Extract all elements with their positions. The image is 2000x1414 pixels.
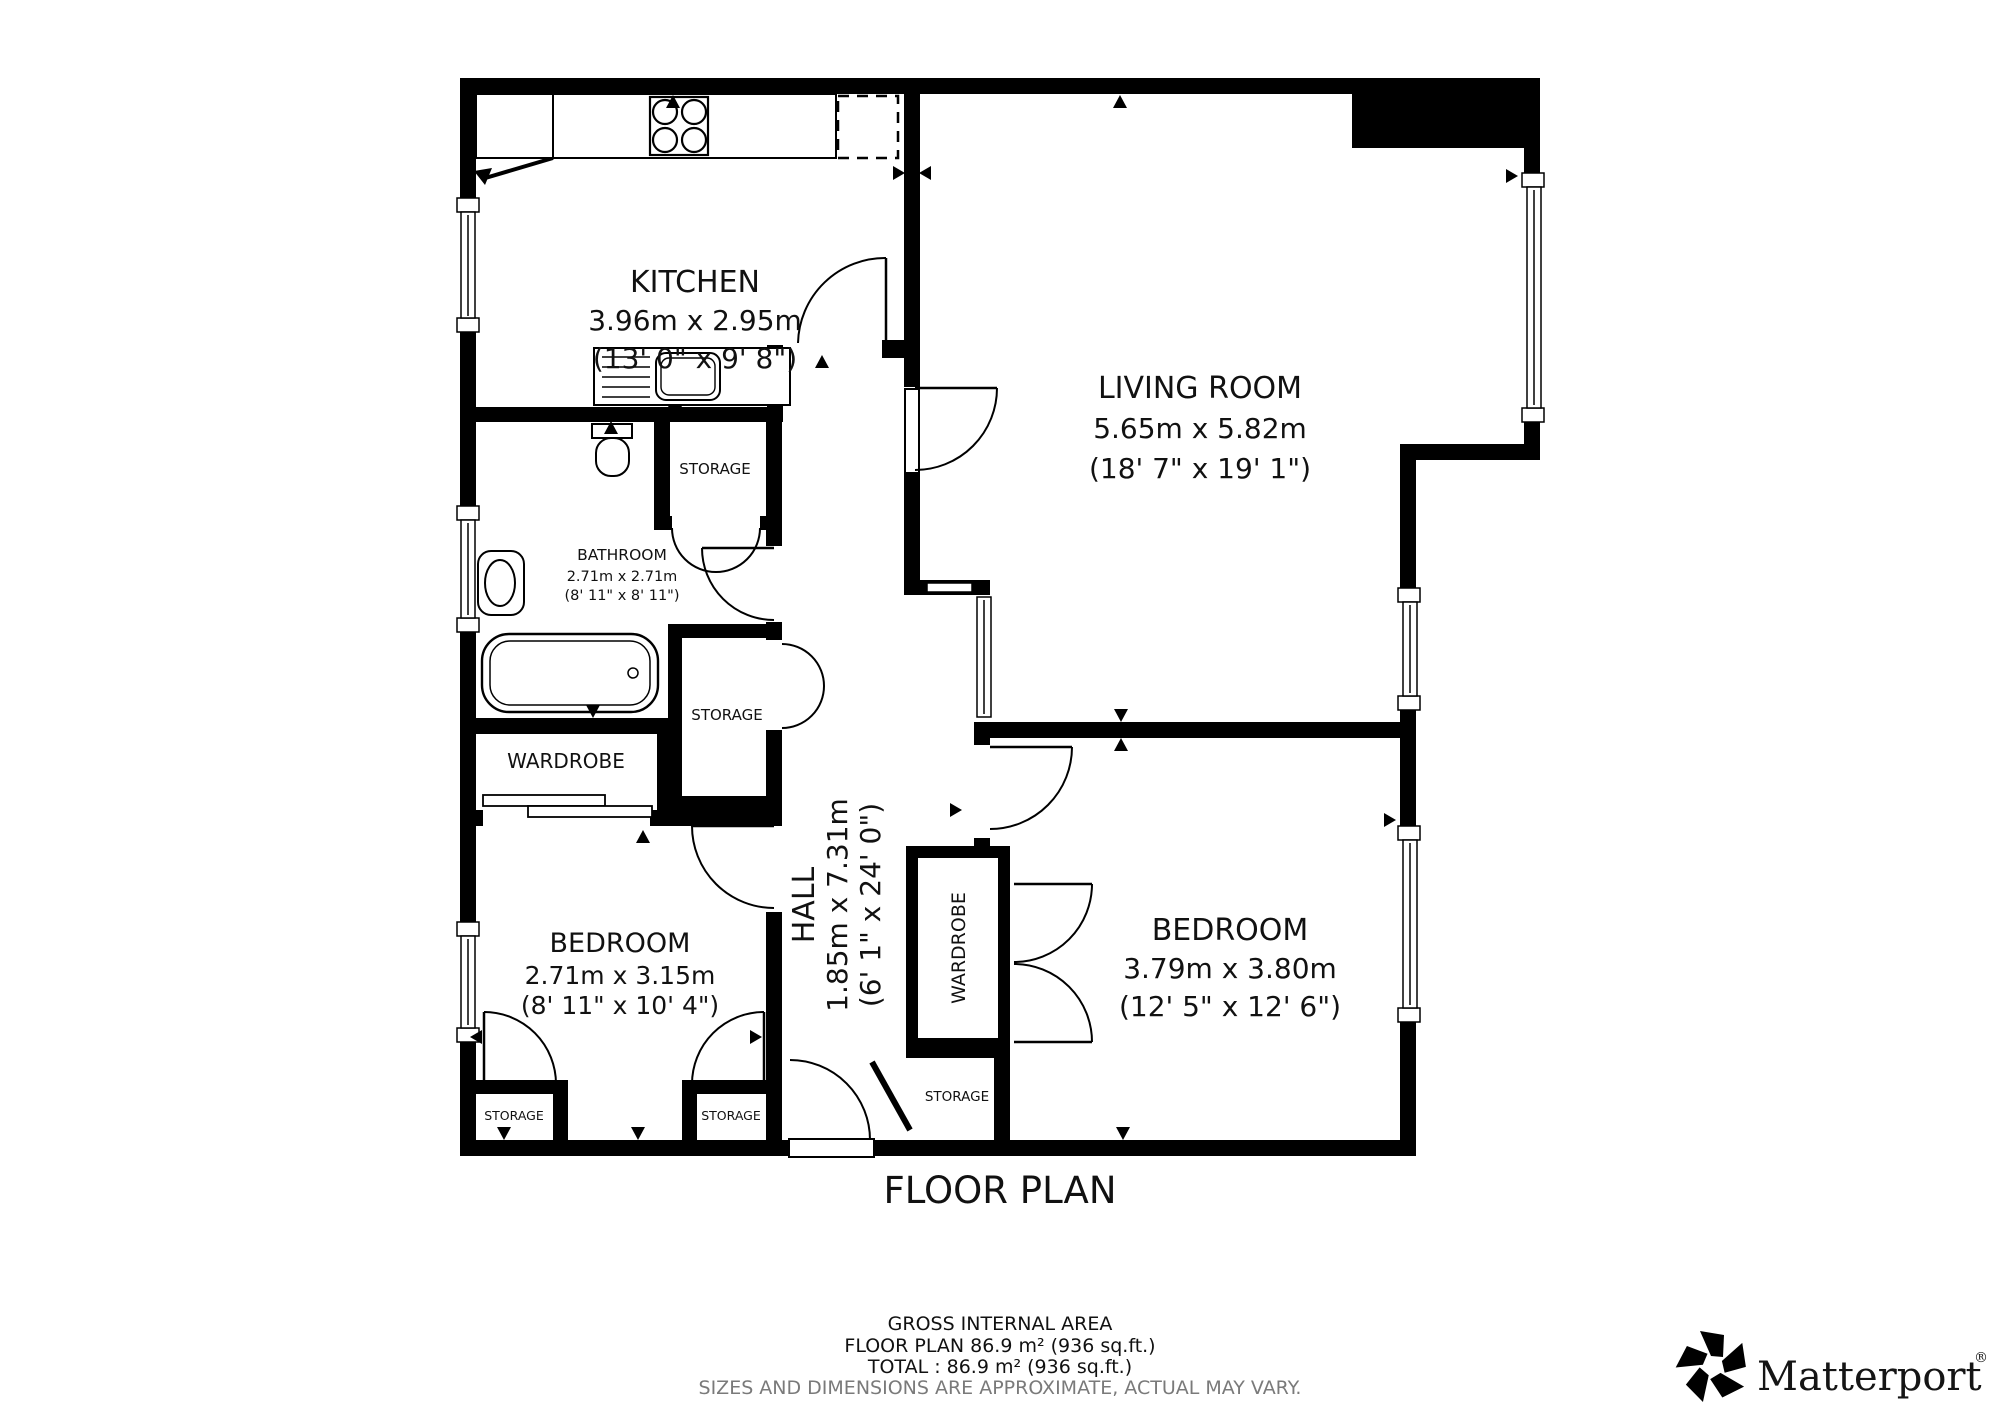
- storage-bedroom-right-label: STORAGE: [701, 1108, 761, 1123]
- footer-floor-plan-area: FLOOR PLAN 86.9 m² (936 sq.ft.): [844, 1335, 1155, 1357]
- bathroom-label: BATHROOM: [577, 546, 667, 564]
- bathtub-icon: [482, 634, 658, 712]
- bedroom-large-window: [1398, 826, 1420, 1022]
- closet-left-door: [484, 1012, 556, 1084]
- living-room-side-window: [1398, 588, 1420, 710]
- wardrobe-hall-label: WARDROBE: [948, 892, 970, 1004]
- hall-metric: 1.85m x 7.31m: [821, 798, 854, 1012]
- bedroom-large-label: BEDROOM: [1152, 913, 1309, 948]
- floor-plan-drawing: KITCHEN 3.96m x 2.95m (13' 0" x 9' 8") L…: [0, 0, 2000, 1414]
- wardrobe-bathroom-label: WARDROBE: [507, 749, 625, 773]
- bedroom-large-imperial: (12' 5" x 12' 6"): [1119, 990, 1341, 1023]
- living-room-door: [905, 388, 997, 473]
- bathroom-sink-icon: [478, 551, 524, 615]
- footer-gross-internal-area: GROSS INTERNAL AREA: [888, 1313, 1113, 1335]
- hall-label: HALL: [787, 866, 822, 943]
- storage-mid-bifold-door: [782, 644, 824, 728]
- floor-plan-page: KITCHEN 3.96m x 2.95m (13' 0" x 9' 8") L…: [0, 0, 2000, 1414]
- living-room-label: LIVING ROOM: [1098, 371, 1302, 406]
- bedroom-small-imperial: (8' 11" x 10' 4"): [521, 991, 719, 1020]
- storage-bathroom-top-label: STORAGE: [679, 460, 750, 478]
- bedroom-small-window: [457, 922, 479, 1042]
- bathroom-imperial: (8' 11" x 8' 11"): [565, 588, 680, 604]
- kitchen-metric: 3.96m x 2.95m: [588, 304, 802, 337]
- sliding-wardrobe-doors-icon: [483, 795, 652, 817]
- wardrobe-hall-double-doors: [1014, 884, 1092, 1042]
- appliance-dashed-icon: [838, 96, 898, 158]
- bathroom-metric: 2.71m x 2.71m: [567, 569, 678, 585]
- bedroom-large-metric: 3.79m x 3.80m: [1123, 952, 1337, 985]
- kitchen-imperial: (13' 0" x 9' 8"): [593, 342, 797, 375]
- hall-imperial: (6' 1" x 24' 0"): [854, 803, 887, 1007]
- matterport-wordmark: Matterport: [1757, 1354, 1982, 1400]
- bedroom-large-door: [990, 747, 1072, 829]
- bathroom-window: [457, 506, 479, 632]
- storage-bathroom-mid-label: STORAGE: [691, 706, 762, 724]
- bedroom-small-label: BEDROOM: [550, 928, 691, 959]
- matterport-pinwheel-icon: [1676, 1331, 1750, 1402]
- kitchen-window: [457, 198, 479, 332]
- living-room-window: [1522, 173, 1544, 422]
- closet-right-door: [692, 1012, 764, 1084]
- registered-trademark-symbol: ®: [1974, 1350, 1988, 1366]
- bathroom-door: [702, 548, 774, 620]
- titles: FLOOR PLAN GROSS INTERNAL AREA FLOOR PLA…: [699, 1169, 1302, 1399]
- kitchen-door: [798, 258, 886, 343]
- kitchen-service-door: [474, 158, 553, 185]
- page-title: FLOOR PLAN: [883, 1169, 1116, 1212]
- storage-top-doors: [672, 528, 760, 572]
- stove-icon: [650, 97, 708, 155]
- fixtures: [476, 94, 898, 817]
- bedroom-small-door: [692, 826, 774, 908]
- kitchen-label: KITCHEN: [630, 265, 760, 300]
- matterport-logo: Matterport ®: [1676, 1331, 1988, 1402]
- living-room-metric: 5.65m x 5.82m: [1093, 412, 1307, 445]
- living-room-imperial: (18' 7" x 19' 1"): [1089, 452, 1311, 485]
- footer-disclaimer: SIZES AND DIMENSIONS ARE APPROXIMATE, AC…: [699, 1377, 1302, 1399]
- storage-bedroom-left-label: STORAGE: [484, 1108, 544, 1123]
- footer-total-area: TOTAL : 86.9 m² (936 sq.ft.): [867, 1356, 1132, 1378]
- storage-hall-label: STORAGE: [925, 1089, 989, 1105]
- hall-glass-partition: [977, 597, 991, 717]
- bedroom-small-metric: 2.71m x 3.15m: [525, 961, 716, 990]
